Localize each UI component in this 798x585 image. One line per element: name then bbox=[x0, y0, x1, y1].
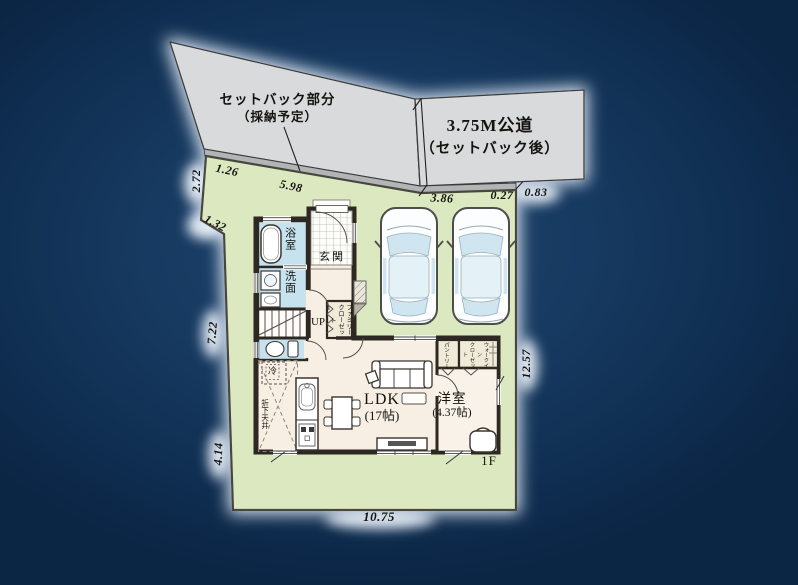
road-width-label-line1: 3.75M公道 bbox=[420, 116, 560, 136]
dim-3-86: 3.86 bbox=[425, 191, 460, 207]
setback-area-label-line1: セットバック部分 bbox=[210, 92, 345, 108]
floor-label: 1F bbox=[476, 454, 502, 469]
setback-area-label-line2: （採納予定） bbox=[210, 110, 345, 124]
dim-2-72: 2.72 bbox=[190, 164, 204, 198]
sofa bbox=[366, 361, 432, 388]
stairs-up-label: UP bbox=[306, 316, 330, 329]
western-room-size-label: (4.37帖) bbox=[422, 407, 482, 420]
tv-board bbox=[377, 438, 427, 450]
vanity-sink bbox=[261, 293, 280, 307]
ldk-size-label: (17帖) bbox=[342, 409, 422, 424]
washing-machine bbox=[261, 271, 280, 290]
fridge-label: 冷 bbox=[265, 366, 280, 376]
bath-label: 浴室 bbox=[283, 227, 296, 251]
site-plan: セットバック部分 （採納予定） 3.75M公道 （セットバック後） 1.26 5… bbox=[0, 0, 798, 585]
ldk-name-label: LDK bbox=[342, 391, 422, 409]
western-room-name-label: 洋室 bbox=[422, 391, 482, 407]
road-after-setback bbox=[415, 90, 584, 186]
dim-10-75: 10.75 bbox=[356, 510, 402, 525]
bathtub bbox=[261, 225, 281, 263]
western-room-chair bbox=[470, 428, 496, 452]
car-right bbox=[447, 208, 515, 324]
car-left bbox=[375, 208, 443, 324]
dim-0-27: 0.27 bbox=[487, 189, 517, 203]
lowered-ceiling-label: 折下天井 bbox=[260, 399, 269, 429]
dim-4-14: 4.14 bbox=[212, 437, 227, 471]
family-closet-label: ファミリー クローゼット bbox=[328, 303, 352, 337]
road-width-label-line2: （セットバック後） bbox=[416, 141, 564, 158]
dim-12-57: 12.57 bbox=[520, 342, 534, 386]
walk-in-closet-label: ウォークイン クローゼット bbox=[467, 341, 489, 368]
dim-0-83: 0.83 bbox=[521, 186, 551, 200]
washroom-label: 洗面 bbox=[283, 270, 296, 294]
pantry-label: パントリー bbox=[443, 342, 449, 369]
dim-7-22: 7.22 bbox=[205, 315, 222, 350]
kitchen-counter bbox=[296, 378, 318, 450]
site-plan-drawing bbox=[0, 0, 798, 585]
entrance-label: 玄関 bbox=[316, 251, 348, 264]
